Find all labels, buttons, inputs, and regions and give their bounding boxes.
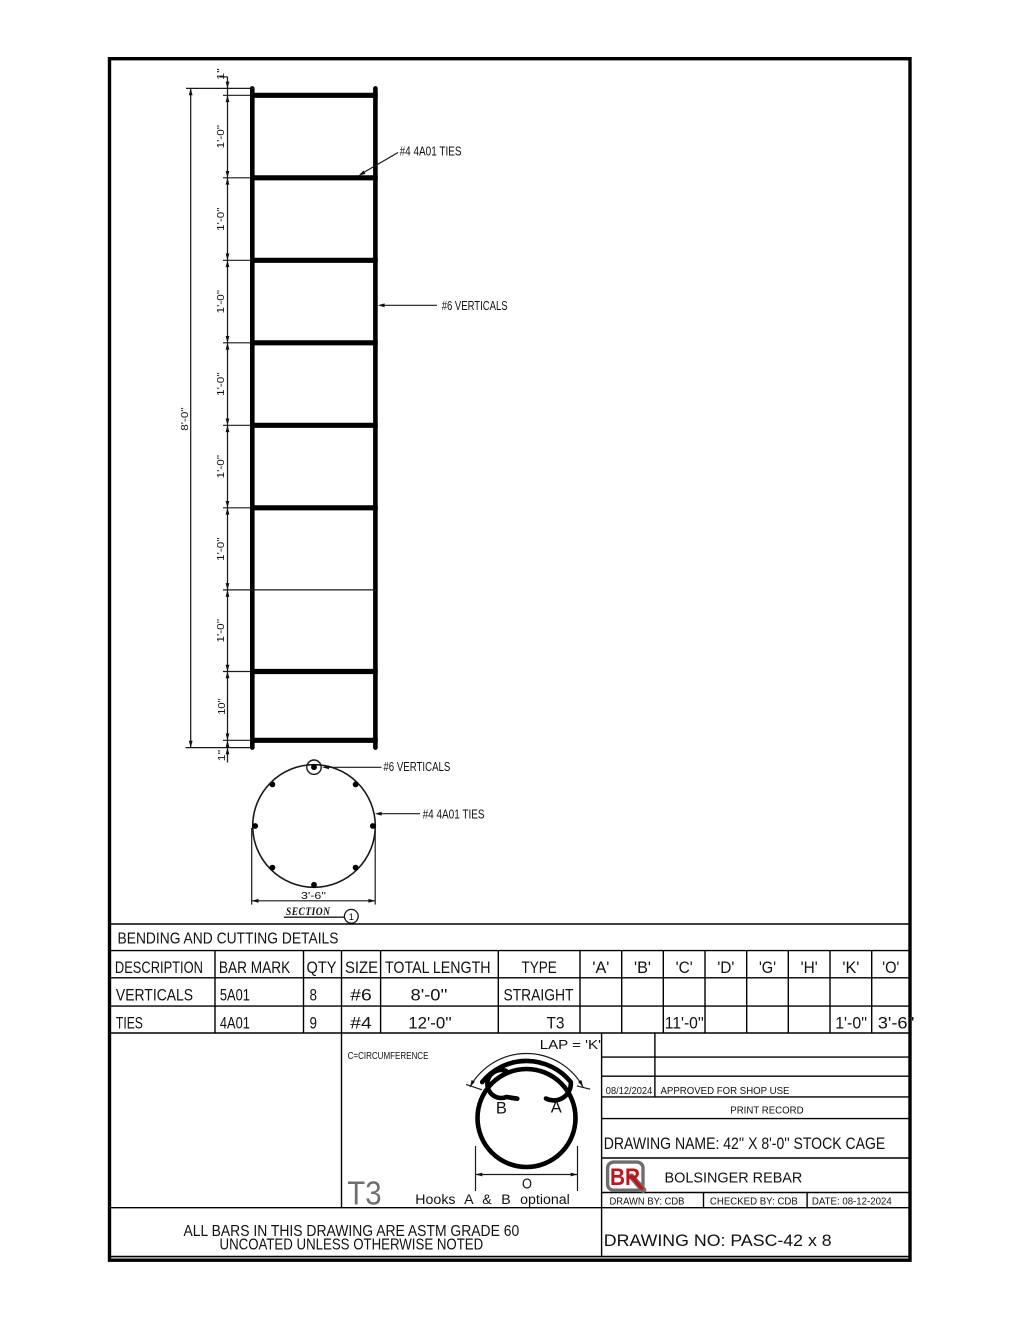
svg-text:APPROVED FOR SHOP USE: APPROVED FOR SHOP USE	[661, 1085, 790, 1096]
svg-text:'G': 'G'	[759, 960, 776, 978]
svg-text:8: 8	[310, 987, 318, 1006]
svg-text:A: A	[551, 1097, 563, 1116]
svg-text:#6: #6	[350, 986, 372, 1004]
svg-text:DRAWING NO: PASC-42 x 8: DRAWING NO: PASC-42 x 8	[604, 1230, 832, 1250]
svg-text:1'-0'': 1'-0''	[215, 537, 226, 560]
svg-text:3'-6'': 3'-6''	[301, 891, 326, 902]
svg-text:3'-6'': 3'-6''	[878, 1013, 915, 1032]
svg-text:1'-0'': 1'-0''	[215, 372, 226, 395]
svg-text:#4: #4	[350, 1014, 372, 1032]
svg-text:TIES: TIES	[116, 1015, 143, 1033]
svg-text:1'-0'': 1'-0''	[215, 455, 226, 478]
svg-text:12'-0'': 12'-0''	[408, 1014, 451, 1033]
svg-text:'H': 'H'	[801, 960, 818, 977]
svg-text:4A01: 4A01	[220, 1015, 250, 1033]
svg-text:'K': 'K'	[842, 959, 859, 977]
svg-text:STRAIGHT: STRAIGHT	[504, 987, 574, 1005]
svg-text:DRAWING NAME: 42'' X 8'-0'' ST: DRAWING NAME: 42'' X 8'-0'' STOCK CAGE	[604, 1135, 885, 1154]
svg-text:1'-0'': 1'-0''	[215, 207, 226, 230]
svg-text:5A01: 5A01	[220, 987, 250, 1005]
svg-text:#4 4A01 TIES: #4 4A01 TIES	[400, 145, 462, 158]
svg-text:'A': 'A'	[592, 959, 609, 977]
svg-text:8'-0'': 8'-0''	[180, 407, 191, 430]
svg-text:QTY: QTY	[307, 960, 337, 978]
svg-text:1'-0'': 1'-0''	[215, 290, 226, 313]
svg-text:SIZE: SIZE	[345, 960, 378, 978]
svg-text:DATE: 08-12-2024: DATE: 08-12-2024	[812, 1196, 892, 1207]
svg-text:O: O	[522, 1176, 532, 1192]
svg-text:'O': 'O'	[882, 960, 899, 978]
svg-text:BR: BR	[610, 1163, 640, 1191]
svg-text:11'-0'': 11'-0''	[665, 1015, 704, 1032]
svg-text:SECTION: SECTION	[286, 905, 331, 918]
svg-text:C=CIRCUMFERENCE: C=CIRCUMFERENCE	[348, 1050, 429, 1061]
svg-text:PRINT RECORD: PRINT RECORD	[730, 1105, 803, 1116]
svg-text:'C': 'C'	[676, 960, 693, 977]
svg-text:TOTAL LENGTH: TOTAL LENGTH	[385, 959, 491, 977]
svg-text:#4 4A01 TIES: #4 4A01 TIES	[423, 808, 485, 821]
svg-text:'B': 'B'	[634, 959, 651, 977]
svg-text:T3: T3	[547, 1015, 565, 1032]
svg-text:T3: T3	[347, 1175, 381, 1212]
svg-text:10'': 10''	[216, 698, 228, 715]
svg-text:TYPE: TYPE	[521, 959, 556, 977]
svg-text:1'-0'': 1'-0''	[835, 1014, 867, 1032]
svg-text:1'-0'': 1'-0''	[215, 125, 226, 148]
svg-text:#6 VERTICALS: #6 VERTICALS	[383, 761, 450, 775]
svg-text:CHECKED BY: CDB: CHECKED BY: CDB	[710, 1196, 798, 1207]
svg-text:8'-0'': 8'-0''	[411, 986, 448, 1005]
svg-text:DESCRIPTION: DESCRIPTION	[115, 960, 203, 978]
svg-text:1'': 1''	[217, 750, 228, 762]
svg-text:1'': 1''	[216, 68, 227, 80]
svg-text:LAP = 'K': LAP = 'K'	[540, 1037, 601, 1052]
svg-text:1'-0'': 1'-0''	[215, 619, 226, 642]
svg-text:'D': 'D'	[717, 960, 734, 977]
svg-text:BOLSINGER REBAR: BOLSINGER REBAR	[665, 1170, 803, 1186]
svg-text:Hooks A & B optional: Hooks A & B optional	[415, 1192, 570, 1208]
svg-text:#6 VERTICALS: #6 VERTICALS	[442, 300, 508, 314]
svg-text:9: 9	[310, 1014, 318, 1033]
svg-text:1: 1	[349, 912, 354, 923]
svg-text:VERTICALS: VERTICALS	[116, 987, 193, 1005]
svg-text:BENDING AND CUTTING DETAILS: BENDING AND CUTTING DETAILS	[118, 930, 339, 948]
svg-text:08/12/2024: 08/12/2024	[606, 1086, 653, 1097]
svg-text:BAR MARK: BAR MARK	[219, 959, 290, 977]
svg-text:UNCOATED UNLESS OTHERWISE NOTE: UNCOATED UNLESS OTHERWISE NOTED	[220, 1236, 484, 1253]
svg-text:B: B	[496, 1098, 507, 1117]
svg-text:DRAWN BY: CDB: DRAWN BY: CDB	[610, 1196, 685, 1208]
